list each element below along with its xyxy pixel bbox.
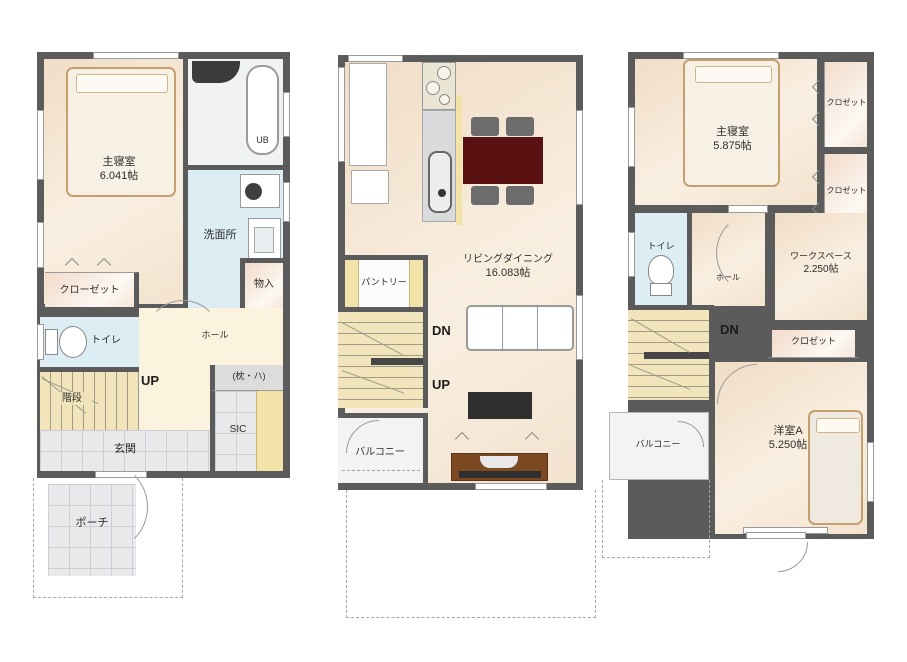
bed: [683, 59, 780, 187]
room-closet-1f: クローゼット: [45, 272, 139, 312]
window: [37, 222, 44, 268]
room-label-washroom: 洗面所: [190, 228, 250, 242]
room-label-storage-1f: 物入: [245, 278, 283, 291]
room-label-master-bedroom-1f: 主寝室 6.041帖: [69, 155, 169, 184]
shower-unit: [192, 61, 240, 83]
room-master-bedroom-1f: 主寝室 6.041帖: [44, 59, 183, 304]
window: [338, 67, 345, 162]
stair-winder-line: [342, 370, 404, 394]
room-label-unit-bath: UB: [246, 135, 279, 147]
room-label-closet-lower-3f: クロゼット: [772, 336, 855, 348]
stairs-up-label-1f: UP: [141, 373, 159, 388]
burner: [437, 66, 451, 80]
stairs-3f: [628, 305, 714, 405]
tv-board-deco: [480, 456, 518, 468]
room-label-shelf-1f: (枕・ハ): [215, 371, 283, 383]
room-toilet-1f: トイレ: [40, 317, 139, 367]
sofa: [466, 305, 574, 351]
faucet: [438, 189, 446, 197]
room-label-stairs-1f: 階段: [52, 392, 92, 405]
stairs-2f: [338, 307, 428, 408]
room-pantry: パントリー: [345, 255, 428, 312]
tv-board-strip: [459, 471, 541, 478]
window: [475, 483, 547, 490]
room-toilet-3f: トイレ: [635, 213, 687, 306]
door-arc: [58, 462, 148, 552]
room-balcony-3f: バルコニー: [609, 412, 709, 480]
sofa-cushion-line: [502, 307, 503, 349]
stair-winder-line: [342, 322, 404, 356]
stove: [422, 62, 456, 110]
washbasin-bowl: [254, 227, 274, 253]
kitchen-counter: [422, 110, 456, 222]
room-label-closet-1f: クローゼット: [45, 284, 134, 297]
floor2-plan: リビングダイニング 16.083帖 パントリー: [338, 55, 583, 490]
burner: [439, 94, 450, 105]
room-label-toilet-1f: トイレ: [76, 334, 136, 347]
window: [348, 55, 403, 62]
toilet-tank: [45, 329, 58, 355]
washing-machine: [240, 174, 280, 208]
stair-winder-line: [631, 318, 690, 353]
window: [683, 52, 779, 59]
tv-board: [451, 453, 548, 481]
window: [628, 232, 635, 277]
floor1-plan: 主寝室 6.041帖 UB 洗面所 物入: [37, 52, 290, 478]
floor3-plan: 主寝室 5.875帖 クロゼット クロゼット トイレ: [628, 52, 874, 539]
room-label-shoe-closet: SIC: [217, 423, 259, 436]
window: [37, 324, 44, 360]
room-label-toilet-3f: トイレ: [635, 241, 687, 253]
room-label-closet-top-3f: クロゼット: [825, 98, 868, 108]
refrigerator: [351, 170, 389, 204]
door-arc: [641, 410, 715, 484]
stairs-1f: 階段: [40, 372, 139, 430]
stairs-up-label-2f: UP: [432, 377, 450, 392]
stairs-down-label-3f: DN: [720, 322, 739, 337]
window: [283, 182, 290, 222]
toilet-tank: [650, 283, 672, 296]
room-western-a: 洋室A 5.250帖: [715, 362, 867, 534]
door-arc: [332, 406, 425, 499]
room-storage-1f: 物入: [240, 258, 283, 308]
stairs-down-label-2f: DN: [432, 323, 451, 338]
window: [576, 110, 583, 205]
room-label-closet-mid-3f: クロゼット: [825, 186, 868, 196]
window: [37, 110, 44, 180]
chair: [506, 117, 534, 136]
toilet-bowl: [648, 255, 674, 285]
window: [93, 52, 179, 59]
room-balcony-2f: バルコニー: [338, 413, 428, 483]
stair-divider: [644, 352, 709, 359]
kitchen-cabinet: [349, 63, 387, 166]
tv: [468, 392, 532, 419]
pillow: [695, 66, 772, 83]
floor-plan: 主寝室 6.041帖 UB 洗面所 物入: [0, 0, 907, 662]
door-arc: [716, 212, 798, 294]
window: [867, 442, 874, 502]
room-shoe-closet: SIC: [210, 391, 283, 471]
room-closet-top-3f: クロゼット: [824, 62, 867, 147]
door-mark: [525, 432, 539, 446]
door-arc: [145, 300, 221, 376]
room-label-living-dining: リビングダイニング 16.083帖: [453, 253, 563, 280]
burner: [426, 81, 440, 95]
chair: [506, 186, 534, 205]
room-label-master-bedroom-3f: 主寝室 5.875帖: [685, 125, 780, 154]
window: [628, 107, 635, 167]
sofa-cushion-line: [537, 307, 538, 349]
washing-machine-door: [245, 183, 262, 200]
door-mark: [455, 432, 469, 446]
dining-table: [463, 137, 543, 184]
sink: [428, 151, 452, 213]
room-entrance: 玄関: [40, 430, 210, 471]
window: [283, 92, 290, 137]
stair-winder-line: [631, 365, 691, 390]
pantry-shelf: [409, 260, 423, 307]
room-label-pantry: パントリー: [359, 277, 409, 289]
roof-outline-3f: [602, 480, 710, 558]
room-label-entrance: 玄関: [95, 442, 155, 456]
chair: [471, 186, 499, 205]
counter-edge: [456, 95, 462, 225]
room-closet-lower-3f: クロゼット: [767, 325, 860, 358]
roof-outline-2f: [346, 490, 596, 618]
window: [576, 295, 583, 360]
chair: [471, 117, 499, 136]
sic-shelf: [256, 391, 283, 471]
pantry-shelf: [345, 260, 359, 307]
closet-shelf-1f: (枕・ハ): [210, 365, 283, 391]
room-master-bedroom-3f: 主寝室 5.875帖: [635, 59, 817, 205]
stair-divider: [371, 358, 423, 365]
pillow: [76, 74, 168, 93]
room-unit-bath: UB: [188, 59, 283, 165]
